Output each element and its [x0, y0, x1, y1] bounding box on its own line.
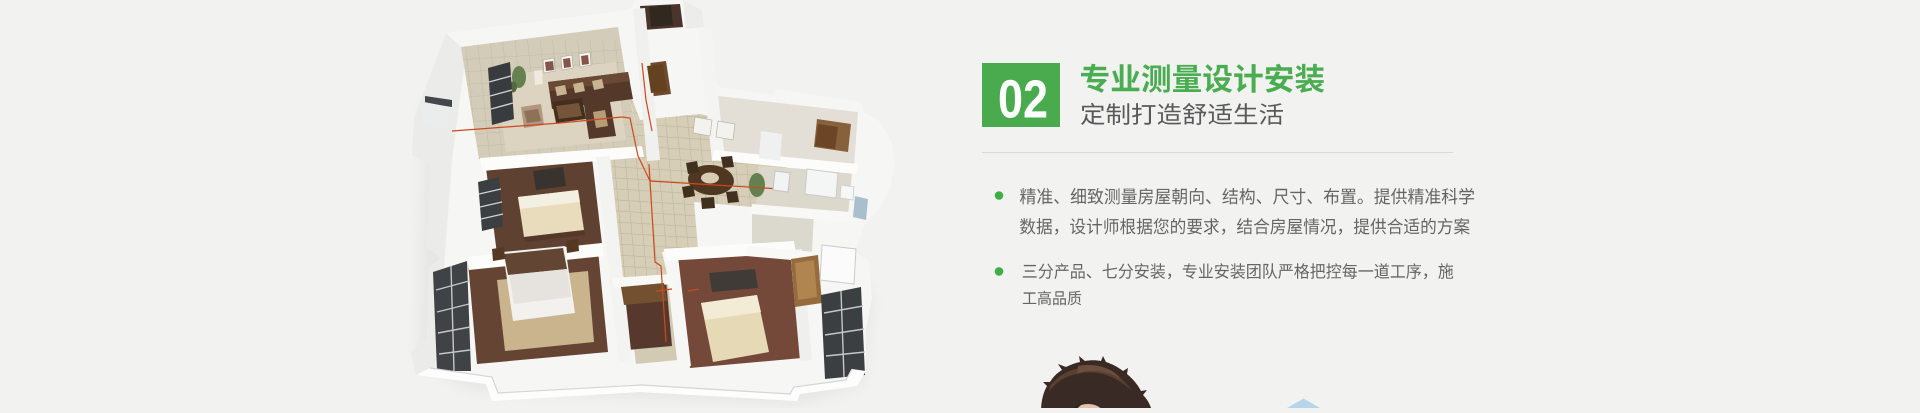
svg-text:02: 02: [998, 70, 1048, 130]
